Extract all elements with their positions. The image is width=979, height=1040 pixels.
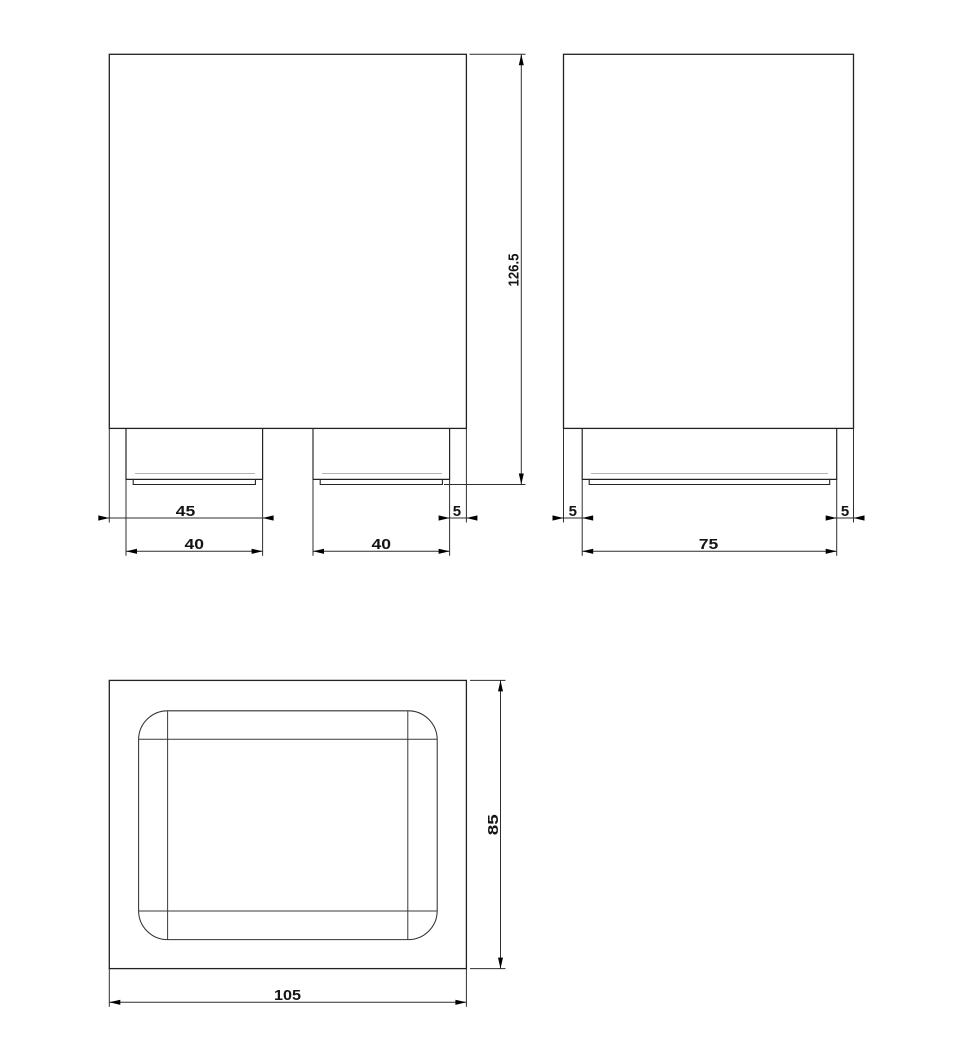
svg-text:40: 40 [185, 536, 205, 553]
svg-text:45: 45 [176, 503, 196, 520]
svg-text:126.5: 126.5 [506, 254, 523, 287]
svg-text:85: 85 [485, 814, 502, 835]
svg-text:40: 40 [372, 536, 392, 553]
svg-text:5: 5 [569, 503, 577, 520]
svg-text:5: 5 [453, 503, 461, 520]
svg-text:5: 5 [841, 503, 849, 520]
svg-text:75: 75 [699, 536, 719, 553]
svg-text:105: 105 [274, 987, 301, 1004]
